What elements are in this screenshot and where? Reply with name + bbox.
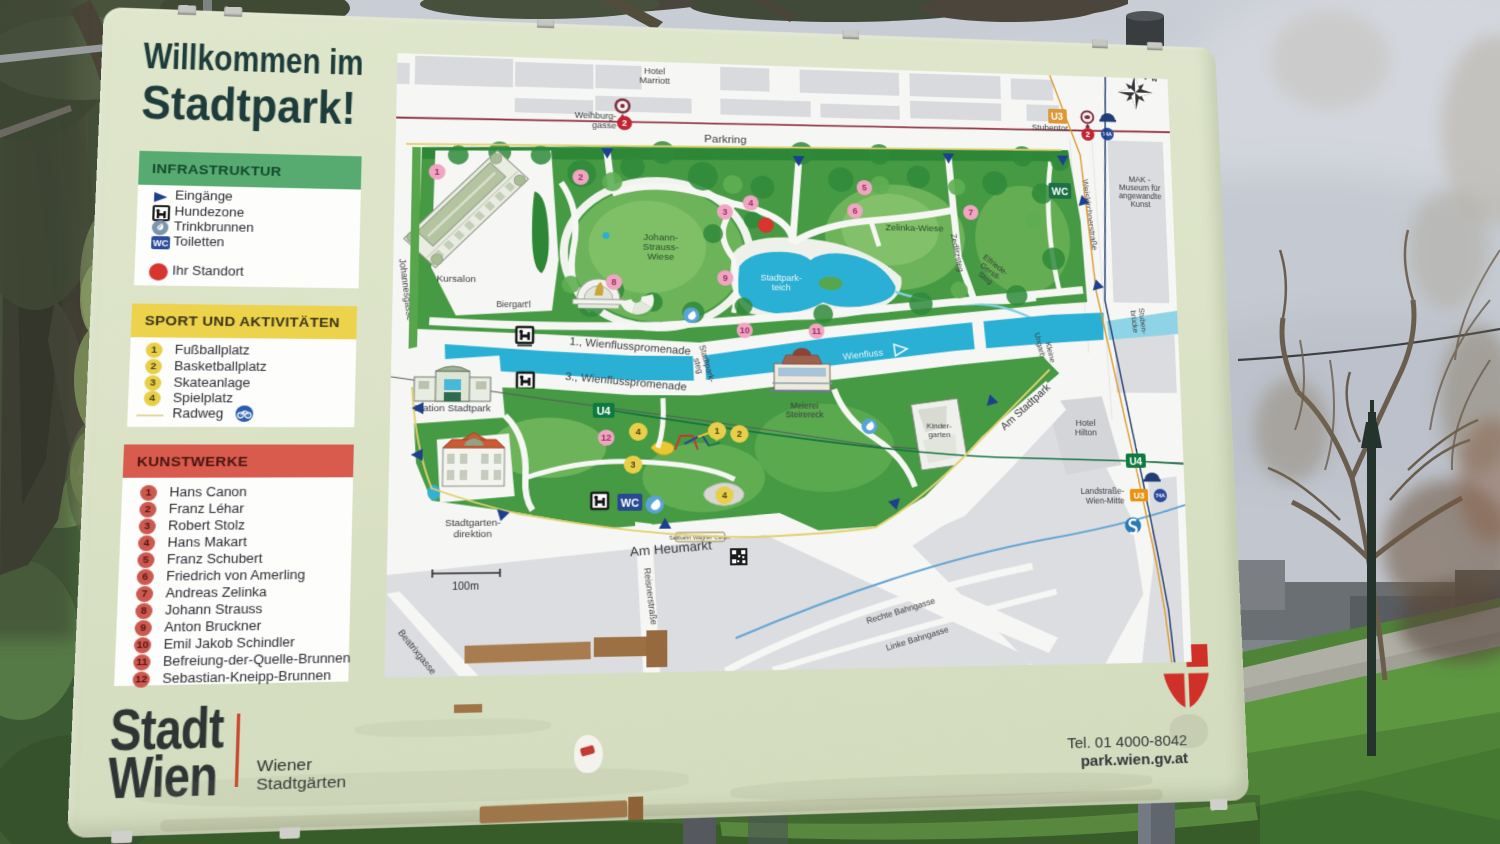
svg-text:WC: WC <box>153 238 170 248</box>
svg-text:Kunst: Kunst <box>1130 200 1151 209</box>
svg-text:Zelinka-Wiese: Zelinka-Wiese <box>885 223 944 234</box>
svg-text:Wien-Mitte: Wien-Mitte <box>1086 496 1125 505</box>
svg-text:6: 6 <box>853 207 858 216</box>
svg-text:2: 2 <box>1086 131 1091 140</box>
svg-text:teich: teich <box>772 283 791 292</box>
svg-text:Parkring: Parkring <box>704 132 746 146</box>
svg-text:74A: 74A <box>1155 494 1165 500</box>
svg-text:Hotel: Hotel <box>1075 418 1095 427</box>
svg-text:Stadtpark-: Stadtpark- <box>761 273 802 283</box>
svg-text:4: 4 <box>636 428 642 438</box>
svg-text:WC: WC <box>621 498 639 510</box>
svg-text:7: 7 <box>968 208 973 217</box>
svg-text:2: 2 <box>622 119 627 128</box>
svg-text:Stadtgarten-: Stadtgarten- <box>445 518 501 529</box>
svg-text:12: 12 <box>601 434 611 444</box>
svg-text:Weihburg-: Weihburg- <box>575 110 617 120</box>
svg-text:U4: U4 <box>1129 457 1142 468</box>
svg-text:4: 4 <box>722 491 728 501</box>
svg-text:Kursalon: Kursalon <box>437 274 477 285</box>
svg-text:Steirereck: Steirereck <box>785 410 824 420</box>
svg-text:garten: garten <box>928 430 951 439</box>
svg-text:4: 4 <box>748 199 754 208</box>
svg-text:U4: U4 <box>597 406 611 418</box>
svg-text:8: 8 <box>611 278 616 287</box>
svg-text:Hotel: Hotel <box>644 66 665 76</box>
svg-text:74A: 74A <box>1103 133 1113 139</box>
svg-text:2: 2 <box>737 430 742 439</box>
svg-text:9: 9 <box>723 274 728 283</box>
svg-text:U3: U3 <box>1051 113 1063 123</box>
svg-text:Station Stadtpark: Station Stadtpark <box>413 403 491 414</box>
svg-text:Biergart'l: Biergart'l <box>496 299 531 309</box>
svg-text:U3: U3 <box>1133 491 1144 500</box>
svg-text:100m: 100m <box>452 582 479 593</box>
svg-text:5: 5 <box>862 184 867 193</box>
svg-text:1: 1 <box>715 427 720 436</box>
svg-text:Marriott: Marriott <box>639 76 670 86</box>
svg-text:gasse: gasse <box>592 121 616 131</box>
svg-text:Hilton: Hilton <box>1075 428 1097 437</box>
svg-text:WC: WC <box>1052 187 1069 198</box>
svg-text:10: 10 <box>740 326 750 335</box>
svg-text:3: 3 <box>630 460 635 470</box>
svg-text:1: 1 <box>434 168 439 177</box>
svg-text:Landstraße-: Landstraße- <box>1080 486 1124 495</box>
svg-text:3: 3 <box>722 208 727 217</box>
svg-text:Stubentor: Stubentor <box>1032 123 1069 133</box>
svg-text:direktion: direktion <box>453 529 491 540</box>
svg-text:2: 2 <box>578 173 583 182</box>
svg-text:11: 11 <box>812 327 822 336</box>
svg-text:Wiese: Wiese <box>647 252 674 263</box>
